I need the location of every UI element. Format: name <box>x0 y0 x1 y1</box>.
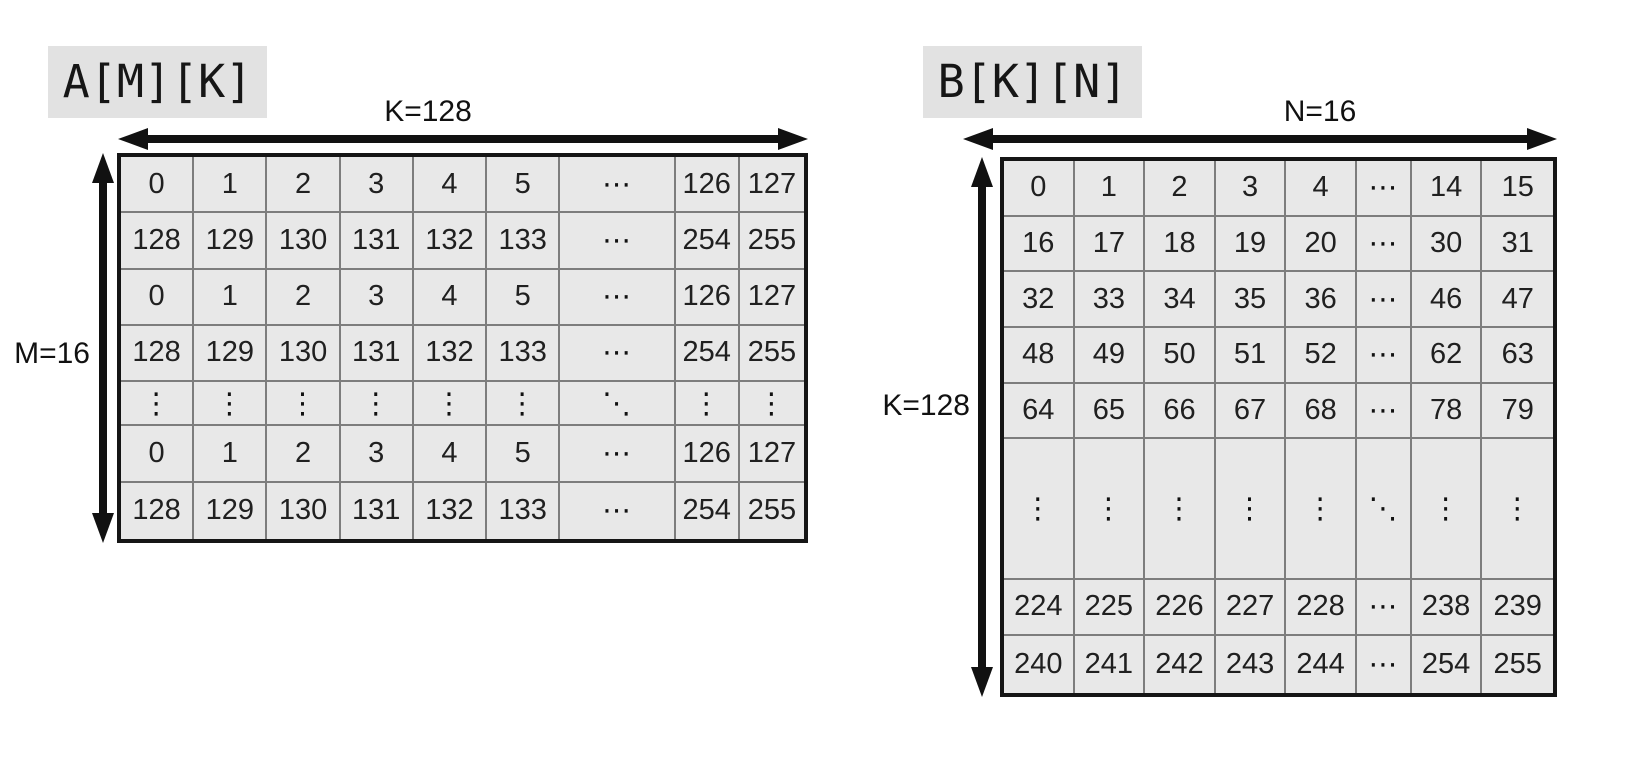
matrix-cell: 132 <box>414 326 487 382</box>
matrix-cell: 3 <box>341 270 414 326</box>
matrix-cell: 16 <box>1004 217 1075 273</box>
matrix-cell: 4 <box>414 157 487 213</box>
matrix-ellipsis-cell: ⋮ <box>1286 439 1357 579</box>
matrix-ellipsis-cell: ⋮ <box>1145 439 1216 579</box>
matrix-cell: 3 <box>1216 161 1287 217</box>
matrix-cell: 224 <box>1004 580 1075 637</box>
matrix-cell: 127 <box>740 426 804 482</box>
matrix-a-grid: 012345⋯126127128129130131132133⋯25425501… <box>117 153 808 543</box>
matrix-ellipsis-cell: ⋮ <box>487 382 560 426</box>
matrix-cell: 2 <box>267 270 340 326</box>
matrix-cell: 129 <box>194 326 267 382</box>
matrix-cell: 1 <box>194 270 267 326</box>
matrix-cell: 255 <box>740 213 804 269</box>
matrix-a-height-arrow <box>92 153 114 543</box>
matrix-b-row-count-label: K=128 <box>878 391 970 421</box>
matrix-ellipsis-cell: ⋯ <box>1357 272 1412 328</box>
matrix-cell: 244 <box>1286 636 1357 693</box>
matrix-cell: 130 <box>267 213 340 269</box>
matrix-cell: 20 <box>1286 217 1357 273</box>
matrix-cell: 241 <box>1075 636 1146 693</box>
matrix-a-row-count-label: M=16 <box>8 339 90 369</box>
arrowhead-right-icon <box>1527 128 1557 150</box>
matrix-cell: 0 <box>121 426 194 482</box>
matrix-cell: 4 <box>1286 161 1357 217</box>
matrix-ellipsis-cell: ⋮ <box>1482 439 1553 579</box>
matrix-cell: 1 <box>1075 161 1146 217</box>
matrix-cell: 243 <box>1216 636 1287 693</box>
matrix-cell: 52 <box>1286 328 1357 384</box>
matrix-cell: 62 <box>1412 328 1483 384</box>
matrix-ellipsis-cell: ⋯ <box>1357 217 1412 273</box>
arrowhead-down-icon <box>971 667 993 697</box>
matrix-ellipsis-cell: ⋮ <box>194 382 267 426</box>
matrix-ellipsis-cell: ⋯ <box>1357 384 1412 440</box>
matrix-cell: 127 <box>740 157 804 213</box>
arrow-shaft <box>148 135 778 143</box>
matrix-b-width-arrow <box>963 128 1557 150</box>
matrix-cell: 239 <box>1482 580 1553 637</box>
matrix-cell: 131 <box>341 213 414 269</box>
matrix-cell: 3 <box>341 157 414 213</box>
matrix-cell: 131 <box>341 326 414 382</box>
matrix-cell: 3 <box>341 426 414 482</box>
matrix-ellipsis-cell: ⋮ <box>1216 439 1287 579</box>
matrix-cell: 66 <box>1145 384 1216 440</box>
matrix-cell: 126 <box>676 270 740 326</box>
matrix-cell: 255 <box>740 326 804 382</box>
matrix-cell: 227 <box>1216 580 1287 637</box>
matrix-cell: 0 <box>121 270 194 326</box>
matrix-cell: 32 <box>1004 272 1075 328</box>
matrix-ellipsis-cell: ⋱ <box>1357 439 1412 579</box>
matrix-cell: 254 <box>1412 636 1483 693</box>
matrix-cell: 226 <box>1145 580 1216 637</box>
matrix-ellipsis-cell: ⋯ <box>560 157 675 213</box>
matrix-ellipsis-cell: ⋯ <box>1357 580 1412 637</box>
matrix-cell: 34 <box>1145 272 1216 328</box>
matrix-cell: 129 <box>194 213 267 269</box>
matrix-cell: 242 <box>1145 636 1216 693</box>
matrix-cell: 126 <box>676 426 740 482</box>
matrix-cell: 63 <box>1482 328 1553 384</box>
matrix-cell: 129 <box>194 483 267 539</box>
matrix-cell: 78 <box>1412 384 1483 440</box>
arrowhead-up-icon <box>92 153 114 183</box>
matrix-cell: 5 <box>487 426 560 482</box>
matrix-cell: 255 <box>740 483 804 539</box>
matrix-ellipsis-cell: ⋮ <box>1004 439 1075 579</box>
matrix-ellipsis-cell: ⋮ <box>341 382 414 426</box>
matrix-ellipsis-cell: ⋯ <box>560 326 675 382</box>
matrix-a-width-arrow <box>118 128 808 150</box>
matrix-cell: 238 <box>1412 580 1483 637</box>
matrix-cell: 2 <box>267 426 340 482</box>
arrowhead-right-icon <box>778 128 808 150</box>
matrix-cell: 46 <box>1412 272 1483 328</box>
matrix-cell: 48 <box>1004 328 1075 384</box>
matrix-cell: 2 <box>267 157 340 213</box>
matrix-cell: 128 <box>121 483 194 539</box>
matrix-ellipsis-cell: ⋯ <box>1357 161 1412 217</box>
matrix-cell: 0 <box>1004 161 1075 217</box>
matrix-cell: 30 <box>1412 217 1483 273</box>
matrix-cell: 127 <box>740 270 804 326</box>
matrix-cell: 51 <box>1216 328 1287 384</box>
matrix-cell: 128 <box>121 326 194 382</box>
matrix-a-col-count-label: K=128 <box>118 97 738 127</box>
matrix-cell: 15 <box>1482 161 1553 217</box>
matrix-cell: 131 <box>341 483 414 539</box>
matrix-cell: 18 <box>1145 217 1216 273</box>
matrix-ellipsis-cell: ⋯ <box>560 270 675 326</box>
matrix-cell: 130 <box>267 326 340 382</box>
matrix-ellipsis-cell: ⋱ <box>560 382 675 426</box>
matrix-cell: 225 <box>1075 580 1146 637</box>
matrix-cell: 132 <box>414 483 487 539</box>
matrix-ellipsis-cell: ⋮ <box>121 382 194 426</box>
matrix-cell: 4 <box>414 270 487 326</box>
matrix-ellipsis-cell: ⋮ <box>676 382 740 426</box>
matrix-b-grid: 01234⋯14151617181920⋯30313233343536⋯4647… <box>1000 157 1557 697</box>
matrix-cell: 31 <box>1482 217 1553 273</box>
matrix-ellipsis-cell: ⋯ <box>1357 636 1412 693</box>
matrix-ellipsis-cell: ⋯ <box>560 426 675 482</box>
matrix-cell: 2 <box>1145 161 1216 217</box>
matrix-cell: 133 <box>487 326 560 382</box>
matrix-ellipsis-cell: ⋮ <box>1075 439 1146 579</box>
matrix-cell: 126 <box>676 157 740 213</box>
matrix-cell: 132 <box>414 213 487 269</box>
matrix-cell: 67 <box>1216 384 1287 440</box>
matrix-ellipsis-cell: ⋮ <box>1412 439 1483 579</box>
matrix-cell: 133 <box>487 213 560 269</box>
matrix-cell: 65 <box>1075 384 1146 440</box>
matrix-layout-diagram: A[M][K] K=128 M=16 012345⋯12612712812913… <box>0 0 1634 759</box>
matrix-cell: 64 <box>1004 384 1075 440</box>
matrix-cell: 228 <box>1286 580 1357 637</box>
matrix-cell: 4 <box>414 426 487 482</box>
matrix-cell: 49 <box>1075 328 1146 384</box>
arrowhead-left-icon <box>118 128 148 150</box>
matrix-ellipsis-cell: ⋮ <box>267 382 340 426</box>
matrix-cell: 254 <box>676 213 740 269</box>
matrix-ellipsis-cell: ⋯ <box>560 483 675 539</box>
matrix-ellipsis-cell: ⋯ <box>560 213 675 269</box>
matrix-cell: 5 <box>487 157 560 213</box>
matrix-ellipsis-cell: ⋯ <box>1357 328 1412 384</box>
matrix-cell: 255 <box>1482 636 1553 693</box>
matrix-cell: 35 <box>1216 272 1287 328</box>
matrix-cell: 5 <box>487 270 560 326</box>
matrix-ellipsis-cell: ⋮ <box>740 382 804 426</box>
matrix-cell: 128 <box>121 213 194 269</box>
matrix-cell: 133 <box>487 483 560 539</box>
matrix-cell: 254 <box>676 483 740 539</box>
arrowhead-left-icon <box>963 128 993 150</box>
matrix-cell: 68 <box>1286 384 1357 440</box>
matrix-cell: 17 <box>1075 217 1146 273</box>
matrix-cell: 1 <box>194 426 267 482</box>
matrix-cell: 33 <box>1075 272 1146 328</box>
arrow-shaft <box>993 135 1527 143</box>
matrix-cell: 50 <box>1145 328 1216 384</box>
matrix-cell: 36 <box>1286 272 1357 328</box>
matrix-cell: 1 <box>194 157 267 213</box>
matrix-cell: 240 <box>1004 636 1075 693</box>
arrowhead-down-icon <box>92 513 114 543</box>
matrix-b-height-arrow <box>971 157 993 697</box>
matrix-cell: 79 <box>1482 384 1553 440</box>
arrow-shaft <box>978 187 986 667</box>
matrix-cell: 254 <box>676 326 740 382</box>
matrix-cell: 14 <box>1412 161 1483 217</box>
matrix-ellipsis-cell: ⋮ <box>414 382 487 426</box>
matrix-b-col-count-label: N=16 <box>1023 97 1617 127</box>
matrix-cell: 47 <box>1482 272 1553 328</box>
arrowhead-up-icon <box>971 157 993 187</box>
matrix-cell: 130 <box>267 483 340 539</box>
matrix-cell: 0 <box>121 157 194 213</box>
arrow-shaft <box>99 183 107 513</box>
matrix-cell: 19 <box>1216 217 1287 273</box>
